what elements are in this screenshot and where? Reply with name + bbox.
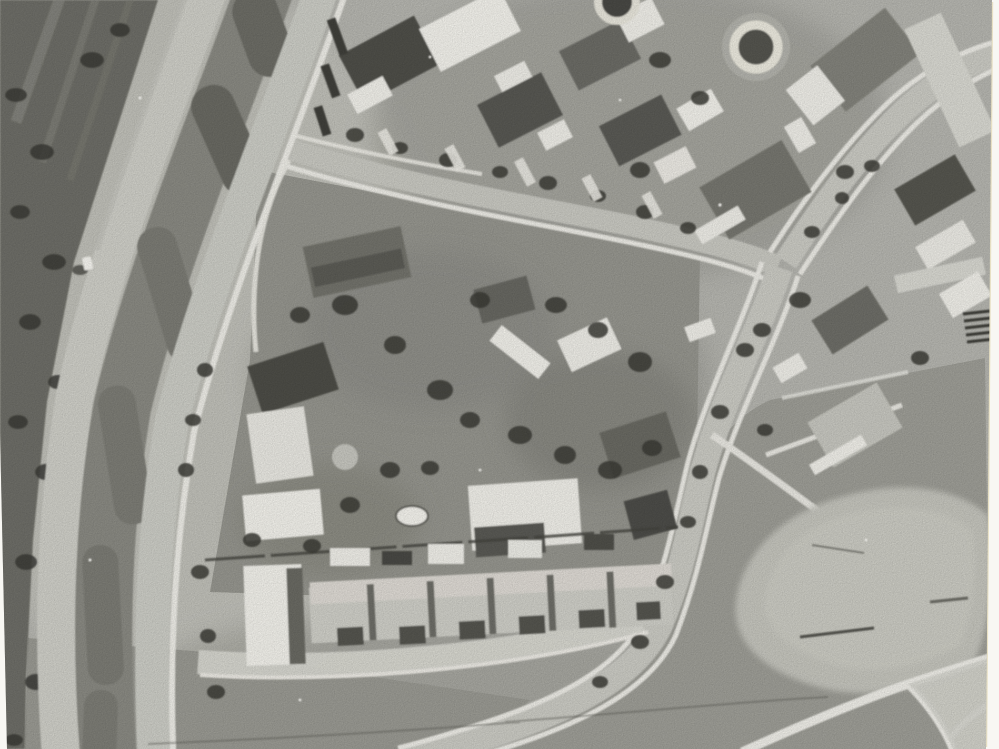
film-grain-overlay [0,0,999,749]
aerial-photograph [0,0,999,749]
scanned-photo-page [0,0,999,749]
photograph-emulsion [0,0,999,749]
aerial-photo-canvas [0,0,999,749]
